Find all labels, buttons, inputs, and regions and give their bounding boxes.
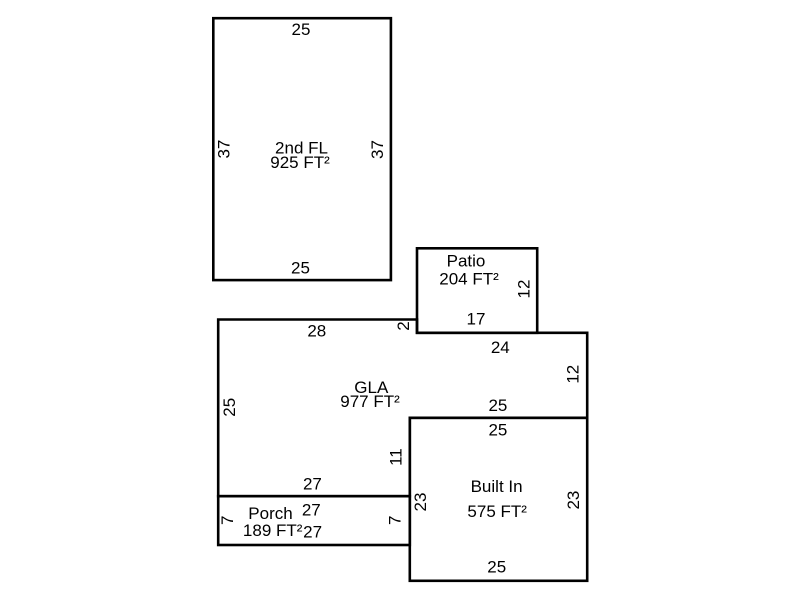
svg-text:28: 28 [307,322,326,341]
svg-text:Patio: Patio [447,252,486,271]
svg-text:25: 25 [292,20,311,39]
svg-text:Porch: Porch [248,504,292,523]
svg-text:17: 17 [467,310,486,329]
svg-text:37: 37 [215,140,234,159]
svg-text:Built In: Built In [471,477,523,496]
svg-text:575 FT²: 575 FT² [467,502,527,521]
svg-text:977 FT²: 977 FT² [340,392,400,411]
svg-text:27: 27 [303,475,322,494]
svg-text:27: 27 [302,500,321,519]
svg-text:12: 12 [515,280,534,299]
svg-text:25: 25 [488,396,507,415]
svg-text:27: 27 [303,523,322,542]
svg-text:7: 7 [386,516,405,525]
svg-text:25: 25 [487,558,506,577]
svg-text:23: 23 [564,491,583,510]
svg-text:204 FT²: 204 FT² [439,269,499,288]
svg-text:37: 37 [368,140,387,159]
svg-text:189 FT²: 189 FT² [243,521,303,540]
svg-text:25: 25 [291,259,310,278]
svg-text:12: 12 [564,365,583,384]
svg-text:23: 23 [411,493,430,512]
svg-text:2: 2 [394,321,413,330]
svg-text:24: 24 [491,338,510,357]
svg-text:925 FT²: 925 FT² [270,153,330,172]
svg-text:25: 25 [220,398,239,417]
svg-text:25: 25 [488,420,507,439]
svg-text:11: 11 [387,448,406,466]
svg-text:7: 7 [218,516,237,525]
